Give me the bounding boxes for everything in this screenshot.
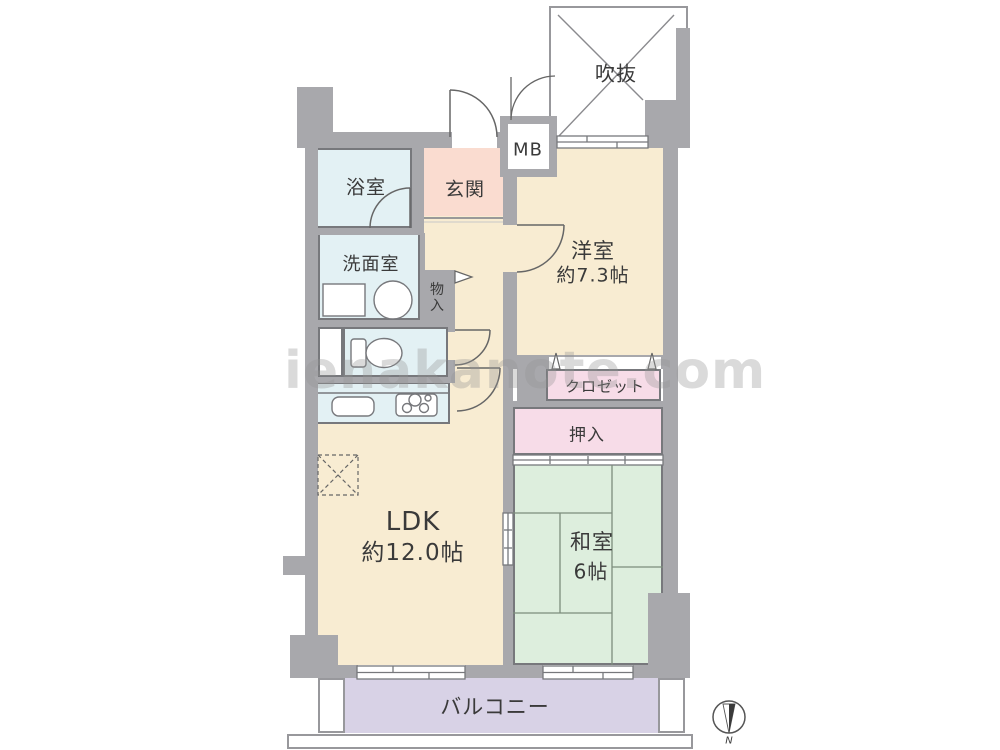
door-swing-front xyxy=(450,90,497,137)
compass-icon xyxy=(713,701,745,733)
watermark: ienakanote.com xyxy=(284,341,766,401)
floorplan: 吹抜 MB 玄関 浴室 洗面室 物入 洋室 約7.3帖 クロゼット 押入 LDK… xyxy=(0,0,1000,750)
label-bath: 浴室 xyxy=(346,173,386,200)
wall-segment xyxy=(633,665,648,678)
label-north: N xyxy=(725,736,732,747)
label-japanese-room-size: 6帖 xyxy=(574,556,609,585)
balcony-side-wall xyxy=(318,678,345,733)
wall-segment xyxy=(305,320,455,327)
wall-segment xyxy=(648,593,690,678)
label-void: 吹抜 xyxy=(595,58,637,87)
label-ldk-size: 約12.0帖 xyxy=(361,533,464,567)
wall-segment xyxy=(297,132,452,148)
label-western-room-size: 約7.3帖 xyxy=(556,261,629,288)
room-washroom xyxy=(318,233,420,320)
label-japanese-room: 和室 xyxy=(570,526,614,556)
label-balcony: バルコニー xyxy=(440,691,550,721)
wall-segment xyxy=(305,228,424,235)
wall-segment xyxy=(448,322,455,332)
wall-segment xyxy=(465,665,543,678)
label-futon-closet: 押入 xyxy=(569,421,605,446)
wall-segment xyxy=(503,458,513,513)
wall-segment xyxy=(513,401,665,407)
wall-segment xyxy=(645,100,690,148)
label-meter-box: MB xyxy=(513,140,543,161)
door-gap xyxy=(503,225,517,272)
wall-segment xyxy=(420,233,425,327)
label-storage: 物入 xyxy=(429,282,445,314)
label-washroom: 洗面室 xyxy=(343,250,400,276)
sliding-door-symbol xyxy=(503,513,513,565)
wall-segment xyxy=(283,556,305,575)
wall-segment xyxy=(305,140,318,677)
wall-segment xyxy=(412,148,424,228)
balcony-side-wall xyxy=(658,678,685,733)
wall-segment xyxy=(318,665,358,678)
balcony-railing xyxy=(287,734,693,749)
wall-segment xyxy=(676,28,690,100)
label-entry: 玄関 xyxy=(445,175,485,202)
wall-segment xyxy=(503,565,513,665)
